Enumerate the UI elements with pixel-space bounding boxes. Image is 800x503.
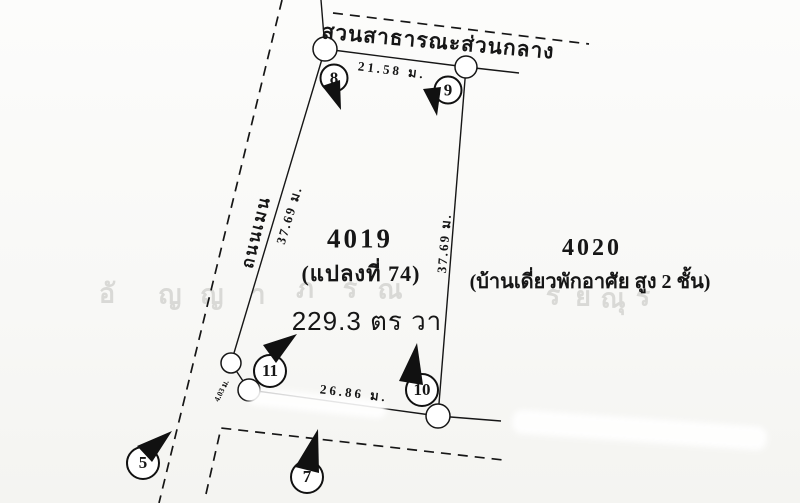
watermark-char: า (250, 273, 265, 316)
park-label: สวนสาธารณะส่วนกลาง (321, 21, 556, 62)
survey-point-se (426, 404, 450, 428)
adjacent-plot-number: 4020 (562, 236, 622, 260)
road-label: ถนนเมน (239, 194, 273, 270)
land-survey-diagram: อัญญาภรณรยณุร สวนสาธารณะส่วนกลาง 21.58 ม… (0, 0, 800, 503)
survey-point-sw1 (221, 353, 241, 373)
boundary-marker-9: 9 (434, 76, 463, 105)
plot-area-label: 229.3 ตร วา (292, 308, 443, 334)
plot-parcel-label: (แปลงที่ 74) (301, 263, 420, 285)
watermark-char: ญ (200, 273, 223, 316)
survey-point-ne (455, 56, 477, 78)
boundary-marker-11: 11 (253, 354, 287, 388)
plot-number: 4019 (327, 226, 393, 253)
top-edge-measurement: 21.58 ม. (357, 59, 426, 80)
boundary-marker-8: 8 (320, 64, 349, 93)
corner-jog-measurement: 4.03 ม. (213, 379, 231, 403)
boundary-marker-10: 10 (405, 373, 439, 407)
left-edge-measurement: 37.69 ม. (274, 184, 304, 245)
setback-dashed-line (206, 428, 503, 494)
boundary-marker-5: 5 (126, 446, 160, 480)
watermark-char: อั (99, 272, 115, 315)
right-edge-measurement: 37.69 ม. (435, 212, 453, 273)
adjacent-plot-description: (บ้านเดี่ยวพักอาศัย สูง 2 ชั้น) (470, 272, 711, 292)
bottom-edge-extension-line (438, 416, 501, 421)
boundary-marker-7: 7 (290, 460, 324, 494)
plot-corner-jog-line (231, 363, 249, 390)
road-left-edge-dashed-line (159, 0, 282, 503)
watermark-char: ญ (158, 273, 181, 316)
paper-smudge (511, 409, 767, 451)
top-edge-extension-line (466, 67, 519, 73)
